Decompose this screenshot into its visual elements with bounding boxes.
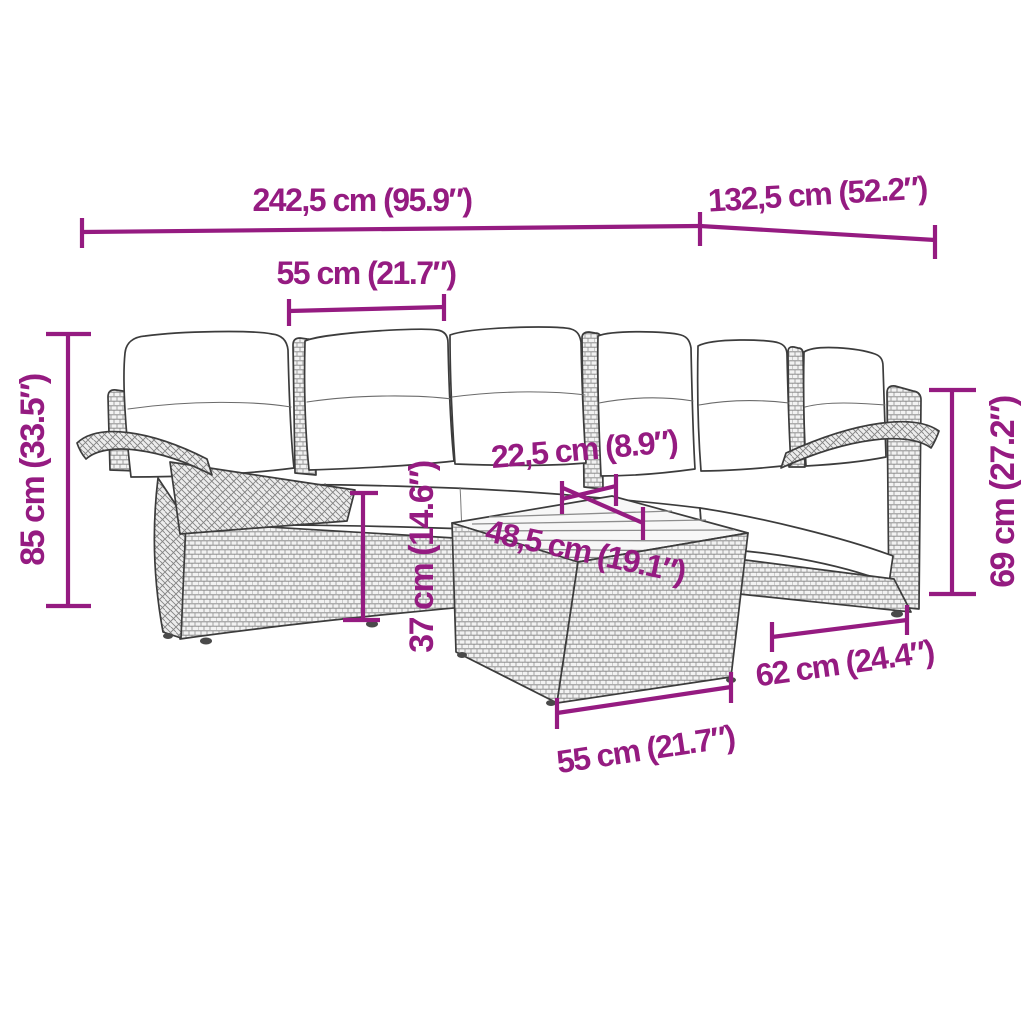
- dim-label-table-height: 37 cm (14.6″): [403, 461, 441, 653]
- frame-post-right-armrest: [887, 386, 921, 609]
- dim-label-table-width: 55 cm (21.7″): [554, 718, 737, 780]
- dim-armrest-height: 69 cm (27.2″): [929, 390, 1022, 594]
- dim-label-seat-width: 55 cm (21.7″): [276, 255, 456, 291]
- back-cushion: [124, 332, 294, 477]
- dimension-diagram: 242,5 cm (95.9″) 132,5 cm (52.2″) 55 cm …: [0, 0, 1024, 1024]
- dim-overall-height: 85 cm (33.5″): [14, 334, 91, 606]
- back-cushion: [698, 340, 791, 471]
- dim-label-armchair-depth: 62 cm (24.4″): [753, 633, 936, 694]
- dim-label-overall-length: 242,5 cm (95.9″): [252, 182, 472, 218]
- dim-label-armrest-height: 69 cm (27.2″): [984, 396, 1022, 588]
- dim-label-side-depth: 132,5 cm (52.2″): [707, 169, 929, 218]
- back-cushion: [305, 329, 454, 470]
- left-armrest-panel: [170, 462, 355, 534]
- dim-armchair-depth: 62 cm (24.4″): [753, 605, 936, 693]
- dim-overall-length: 242,5 cm (95.9″): [82, 182, 700, 248]
- dim-side-depth: 132,5 cm (52.2″): [700, 169, 935, 259]
- dim-seat-width: 55 cm (21.7″): [276, 255, 456, 326]
- dim-label-overall-height: 85 cm (33.5″): [14, 374, 52, 566]
- product-dimension-image: 242,5 cm (95.9″) 132,5 cm (52.2″) 55 cm …: [0, 0, 1024, 1024]
